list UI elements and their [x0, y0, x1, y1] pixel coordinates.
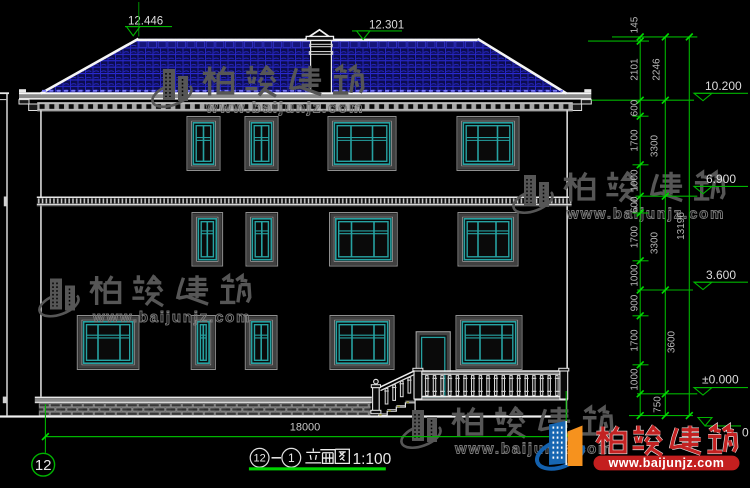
- svg-text:750: 750: [653, 396, 664, 413]
- svg-text:1000: 1000: [630, 169, 641, 192]
- svg-text:18000: 18000: [290, 422, 321, 434]
- svg-text:±0.000: ±0.000: [702, 373, 739, 387]
- svg-text:600: 600: [630, 196, 641, 213]
- svg-text:3300: 3300: [650, 231, 661, 254]
- svg-text:1000: 1000: [630, 368, 641, 391]
- svg-text:2101: 2101: [630, 58, 641, 81]
- svg-text:1700: 1700: [630, 329, 641, 352]
- svg-text:12: 12: [253, 453, 265, 465]
- svg-text:www.baijunjz.com: www.baijunjz.com: [566, 206, 725, 223]
- svg-text:0: 0: [742, 426, 749, 440]
- svg-text:12: 12: [35, 457, 52, 474]
- svg-text:3600: 3600: [667, 330, 678, 353]
- svg-text:1:100: 1:100: [353, 451, 392, 468]
- svg-text:12.446: 12.446: [128, 16, 163, 28]
- svg-text:900: 900: [630, 294, 641, 311]
- svg-text:www.baijunjz.com: www.baijunjz.com: [608, 456, 725, 470]
- svg-text:600: 600: [630, 99, 641, 116]
- svg-text:1700: 1700: [630, 225, 641, 248]
- svg-text:1700: 1700: [630, 129, 641, 152]
- svg-text:10.200: 10.200: [705, 79, 742, 93]
- svg-text:13196: 13196: [676, 212, 687, 240]
- svg-text:2246: 2246: [652, 58, 663, 81]
- svg-text:3300: 3300: [650, 134, 661, 157]
- svg-text:www.baijunjz.com: www.baijunjz.com: [454, 441, 613, 458]
- svg-text:1: 1: [288, 451, 295, 465]
- svg-text:www.baijunjz.com: www.baijunjz.com: [92, 309, 251, 326]
- svg-text:www.baijunjz.com: www.baijunjz.com: [205, 100, 364, 117]
- svg-text:1000: 1000: [630, 264, 641, 287]
- svg-text:6.900: 6.900: [706, 172, 736, 186]
- svg-text:12.301: 12.301: [369, 20, 404, 32]
- svg-text:145: 145: [630, 16, 641, 33]
- svg-text:3.600: 3.600: [706, 268, 736, 282]
